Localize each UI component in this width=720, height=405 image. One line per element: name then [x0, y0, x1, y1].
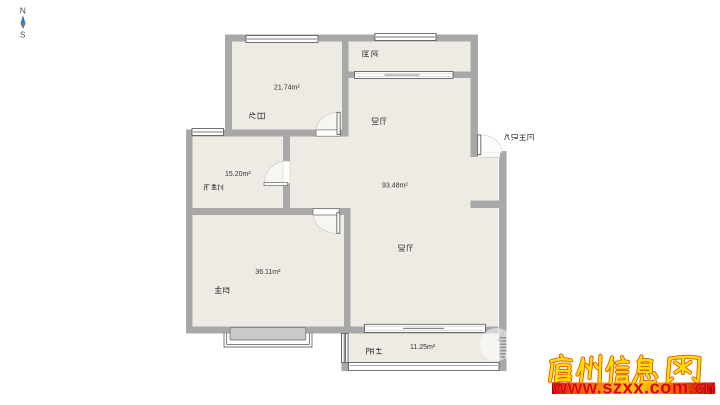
svg-text:21.74m²: 21.74m²: [274, 85, 300, 92]
svg-text:www.szxx.com.cn: www.szxx.com.cn: [552, 376, 717, 397]
svg-text:15.20m²: 15.20m²: [225, 171, 251, 178]
svg-text:36.11m²: 36.11m²: [255, 269, 281, 276]
svg-text:N: N: [20, 5, 26, 15]
svg-text:93.48m²: 93.48m²: [382, 183, 408, 190]
svg-text:11.25m²: 11.25m²: [410, 344, 436, 351]
svg-text:S: S: [20, 31, 25, 40]
